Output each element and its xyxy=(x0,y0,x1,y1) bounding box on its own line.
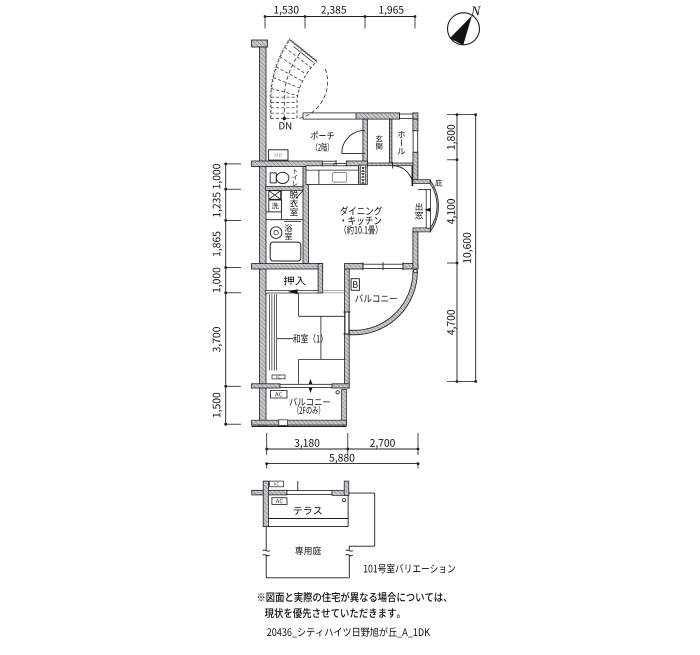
svg-text:N: N xyxy=(470,5,481,20)
